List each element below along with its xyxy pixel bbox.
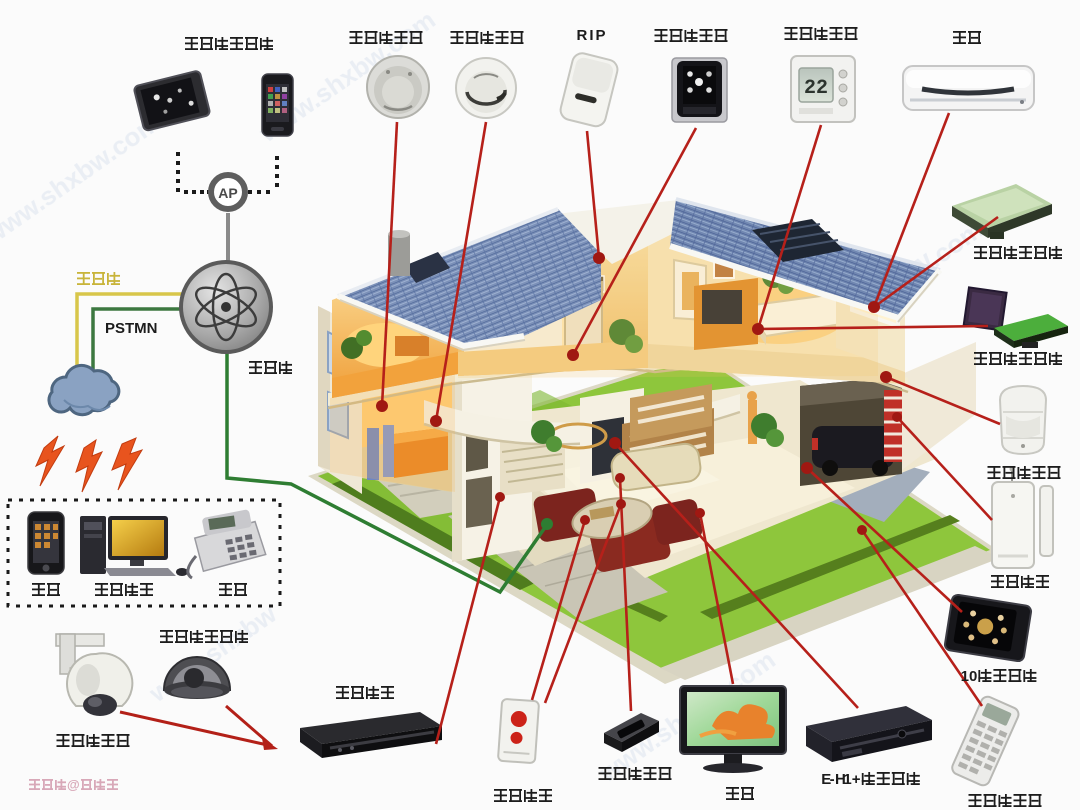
svg-text:+: +	[852, 771, 861, 788]
svg-text:0: 0	[969, 668, 977, 685]
svg-text:-: -	[830, 771, 835, 788]
svg-text:@: @	[67, 777, 80, 792]
svg-text:RIP: RIP	[576, 27, 607, 44]
svg-text:AP: AP	[218, 185, 237, 201]
svg-text:22: 22	[804, 77, 828, 100]
svg-text:PSTMN: PSTMN	[105, 320, 158, 337]
svg-text:1: 1	[843, 771, 851, 788]
svg-text:1: 1	[961, 668, 969, 685]
